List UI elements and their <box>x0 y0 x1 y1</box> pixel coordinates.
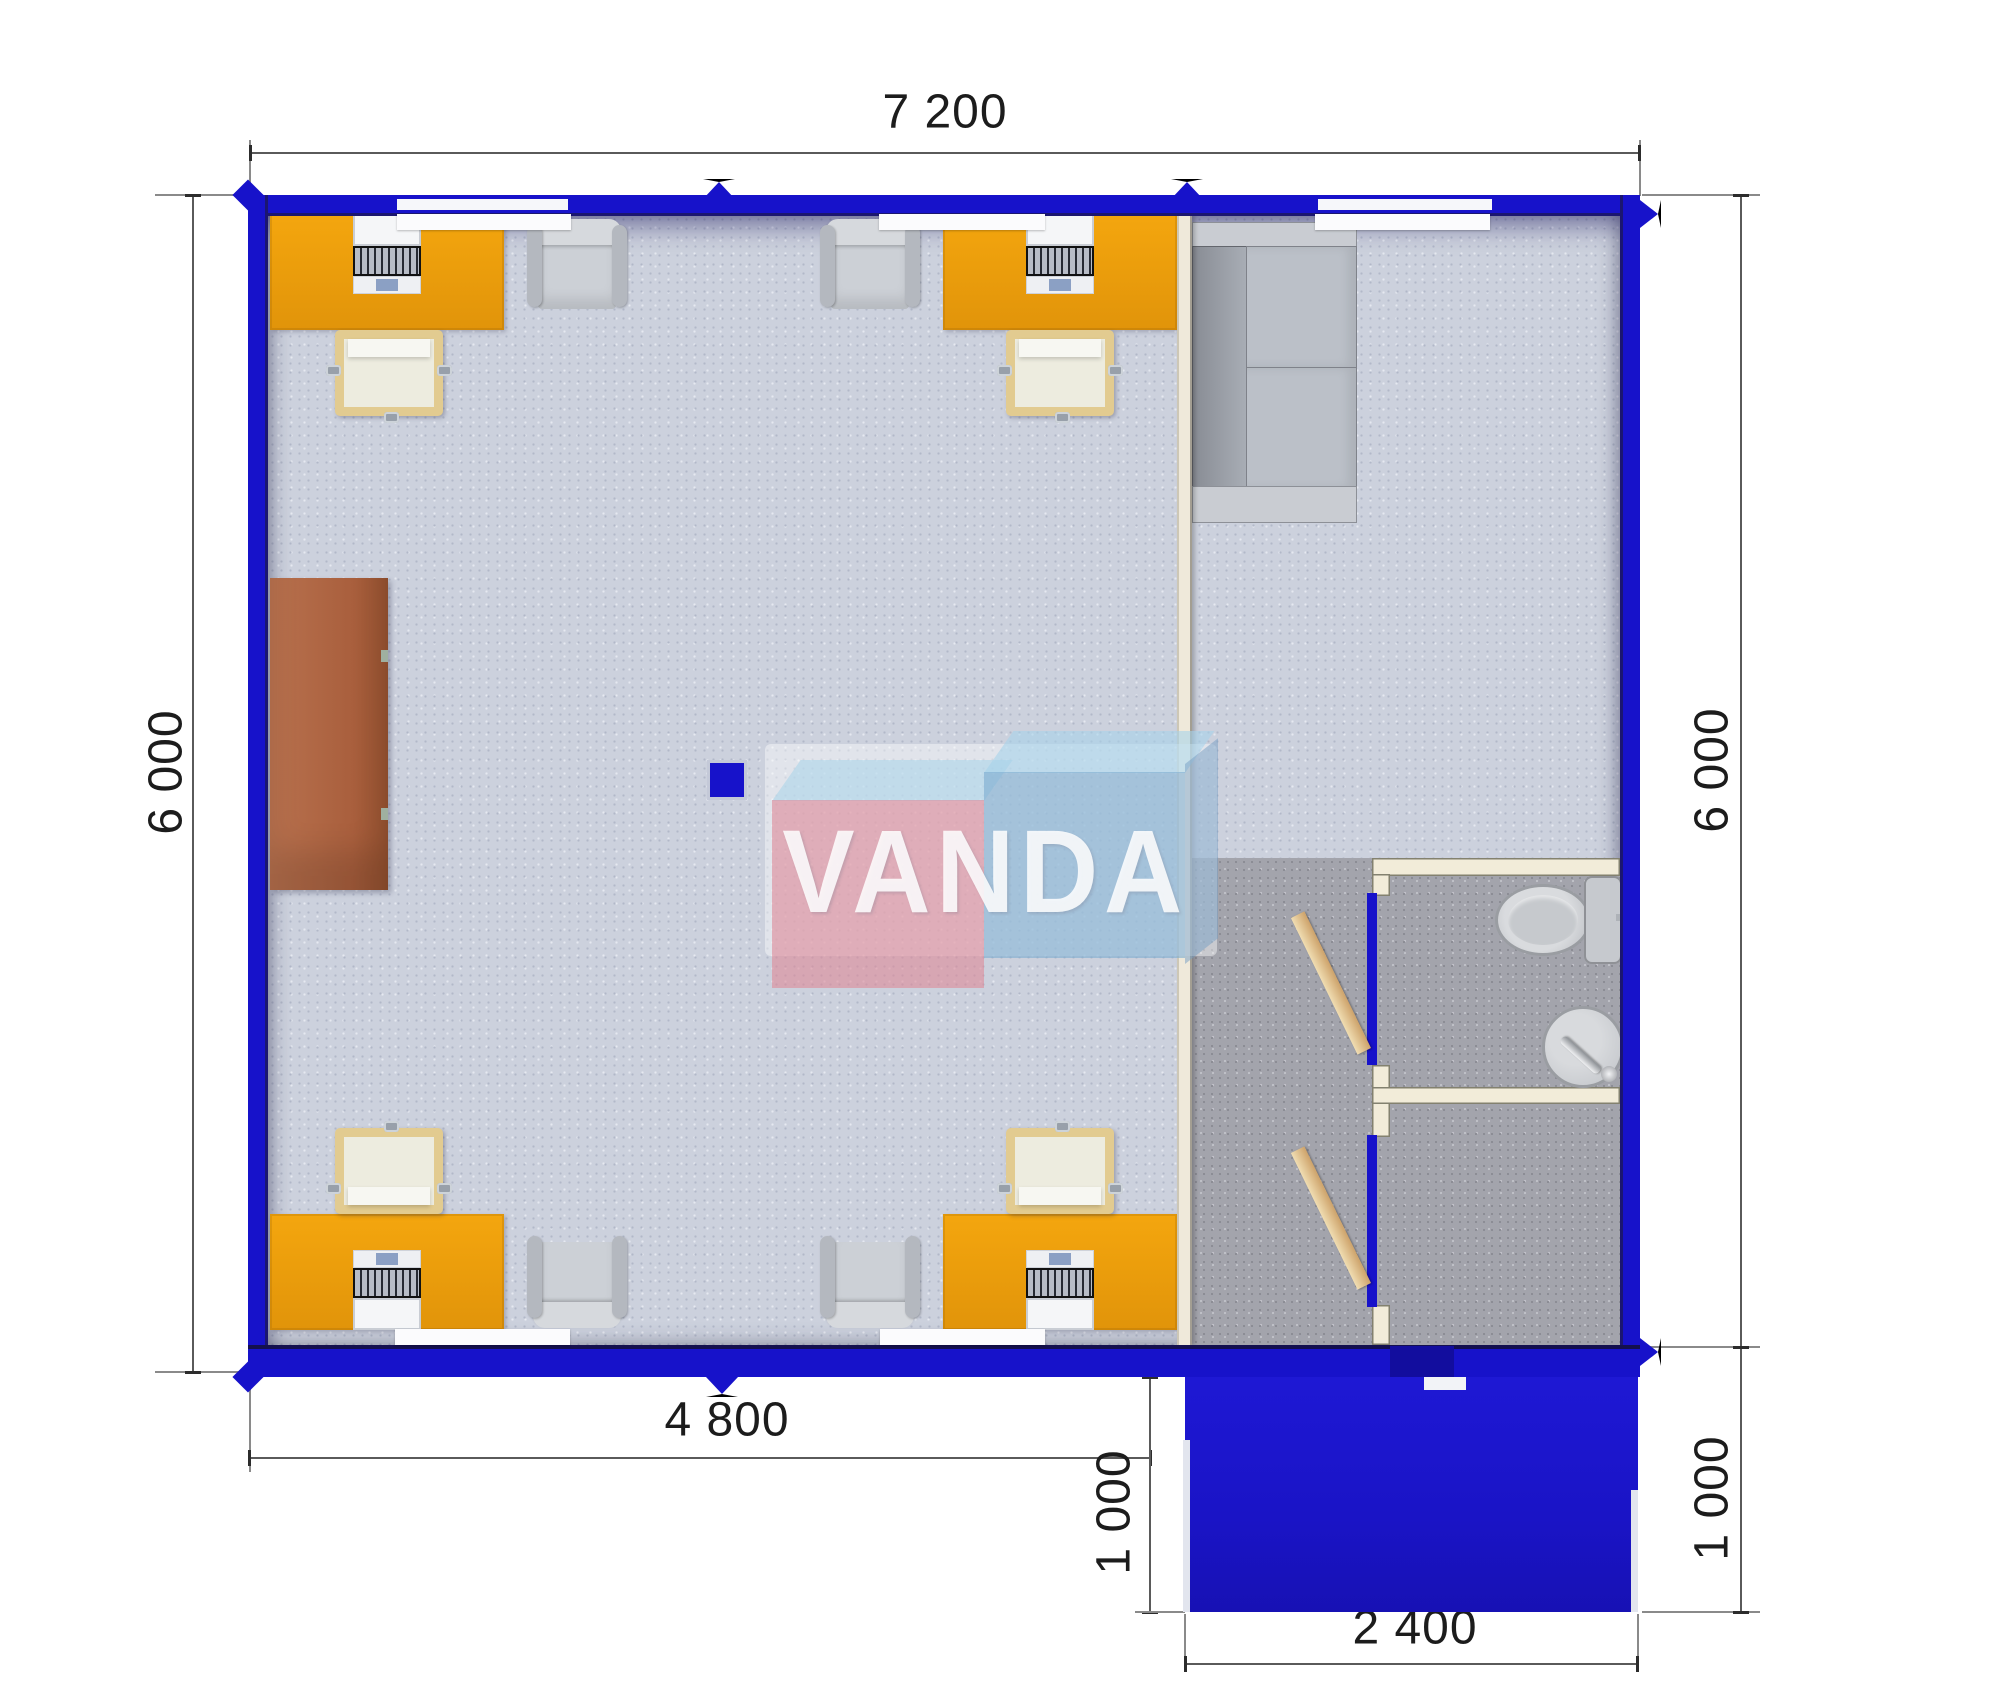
dim-tick <box>1636 1656 1639 1672</box>
dim-tick <box>1733 1611 1749 1614</box>
desk-chair <box>1006 1128 1114 1214</box>
dimension-line-top <box>250 152 1640 154</box>
dim-tick <box>248 1450 251 1466</box>
entrance-canopy <box>1185 1377 1638 1612</box>
window-sill <box>879 214 1045 230</box>
armchair <box>527 219 627 317</box>
laptop-keyboard <box>353 1268 421 1298</box>
dim-tick <box>185 1371 201 1374</box>
wall-left <box>248 195 268 1377</box>
armchair-armrest <box>527 1236 542 1318</box>
chair-backrest <box>1019 339 1101 357</box>
chair-wheel <box>326 365 341 376</box>
wall-right <box>1620 195 1640 1377</box>
dimension-line-bottom-left <box>249 1457 1151 1459</box>
cabinet <box>270 578 388 890</box>
laptop-palmrest <box>1026 1250 1094 1268</box>
laptop-keyboard <box>1026 246 1094 276</box>
armchair-backrest <box>533 1302 621 1328</box>
dimension-line-porch-left <box>1149 1377 1151 1612</box>
dim-tick <box>1733 194 1749 197</box>
chair-wheel <box>437 1183 452 1194</box>
logo-cube-top <box>984 731 1214 773</box>
desk-chair <box>335 330 443 416</box>
window-sill <box>395 1329 570 1345</box>
laptop-touchpad <box>1049 1253 1071 1265</box>
armchair <box>820 219 920 317</box>
dim-label-right: 6 000 <box>1685 707 1740 832</box>
door-frame <box>1367 893 1377 1065</box>
entrance-door <box>1390 1346 1454 1377</box>
sofa-armrest <box>1192 486 1357 523</box>
chair-backrest <box>348 1187 430 1205</box>
sofa-seat <box>1246 367 1357 489</box>
laptop-touchpad <box>376 279 398 291</box>
armchair-armrest <box>612 1236 627 1318</box>
laptop-palmrest <box>353 276 421 294</box>
chair-wheel <box>997 1183 1012 1194</box>
cabinet-handle <box>381 650 388 662</box>
laptop-touchpad <box>376 1253 398 1265</box>
module-tick <box>1171 179 1203 199</box>
canopy-edge <box>1183 1440 1190 1612</box>
laptop-keyboard <box>1026 1268 1094 1298</box>
dim-label-porch-left: 1 000 <box>1087 1449 1142 1574</box>
faucet-knob <box>1601 1066 1617 1082</box>
armchair <box>527 1230 627 1328</box>
laptop <box>1026 1248 1094 1330</box>
chair-wheel <box>437 365 452 376</box>
canopy-door-mark <box>1424 1377 1466 1390</box>
armchair-backrest <box>826 1302 914 1328</box>
dim-tick <box>1638 145 1641 161</box>
cabinet-handle <box>381 808 388 820</box>
chair-wheel <box>1108 365 1123 376</box>
extension-line <box>1135 1611 1185 1613</box>
dim-label-left: 6 000 <box>139 709 194 834</box>
structural-column <box>710 763 744 797</box>
window-sill <box>1315 214 1490 230</box>
dimension-line-right <box>1740 195 1742 1612</box>
chair-wheel <box>1108 1183 1123 1194</box>
dim-tick <box>1184 1656 1187 1672</box>
laptop <box>353 1248 421 1330</box>
sofa <box>1192 222 1357 523</box>
window <box>397 199 568 210</box>
chair-wheel <box>384 1121 399 1132</box>
dim-label-porch-right: 1 000 <box>1685 1435 1740 1560</box>
dimension-line-porch-bottom <box>1185 1663 1638 1665</box>
module-tick <box>703 179 735 199</box>
chair-wheel <box>384 412 399 423</box>
corner-arrow <box>1640 200 1661 228</box>
laptop-palmrest <box>1026 276 1094 294</box>
corner-arrow <box>1640 1338 1661 1366</box>
laptop-touchpad <box>1049 279 1071 291</box>
logo-text: VANDA <box>782 804 1188 940</box>
armchair-armrest <box>820 1236 835 1318</box>
chair-wheel <box>1055 412 1070 423</box>
chair-wheel <box>326 1183 341 1194</box>
logo-cube-side <box>1185 738 1218 964</box>
dim-label-top: 7 200 <box>882 85 1007 140</box>
armchair-armrest <box>905 1236 920 1318</box>
desk-chair <box>1006 330 1114 416</box>
bathroom-wall-top <box>1372 858 1620 876</box>
laptop-screen <box>353 1298 421 1330</box>
bathroom-wall-left <box>1372 1305 1390 1345</box>
desk-chair <box>335 1128 443 1214</box>
dim-tick <box>1733 1346 1749 1349</box>
armchair-armrest <box>527 225 542 307</box>
toilet-lid <box>1508 895 1578 945</box>
window <box>1318 199 1492 210</box>
logo-cube-top <box>772 760 1013 801</box>
canopy-edge <box>1631 1490 1638 1612</box>
armchair-armrest <box>612 225 627 307</box>
chair-backrest <box>1019 1187 1101 1205</box>
armchair-armrest <box>905 225 920 307</box>
floor-plan-canvas: 7 200 6 000 6 000 1 000 4 800 1 000 2 40… <box>0 0 2000 1682</box>
toilet <box>1495 884 1591 956</box>
dim-label-bottom-left: 4 800 <box>664 1393 789 1448</box>
armchair-armrest <box>820 225 835 307</box>
dim-tick <box>249 145 252 161</box>
laptop-keyboard <box>353 246 421 276</box>
bathroom-divider-wall <box>1372 1087 1620 1104</box>
sofa-seat <box>1246 246 1357 368</box>
chair-wheel <box>997 365 1012 376</box>
window-sill <box>880 1329 1045 1345</box>
module-tick <box>706 1377 738 1397</box>
chair-backrest <box>348 339 430 357</box>
chair-wheel <box>1055 1121 1070 1132</box>
sofa-backrest <box>1192 246 1247 490</box>
laptop-screen <box>1026 1298 1094 1330</box>
armchair <box>820 1230 920 1328</box>
dim-tick <box>185 194 201 197</box>
laptop-palmrest <box>353 1250 421 1268</box>
window-sill <box>397 214 571 230</box>
